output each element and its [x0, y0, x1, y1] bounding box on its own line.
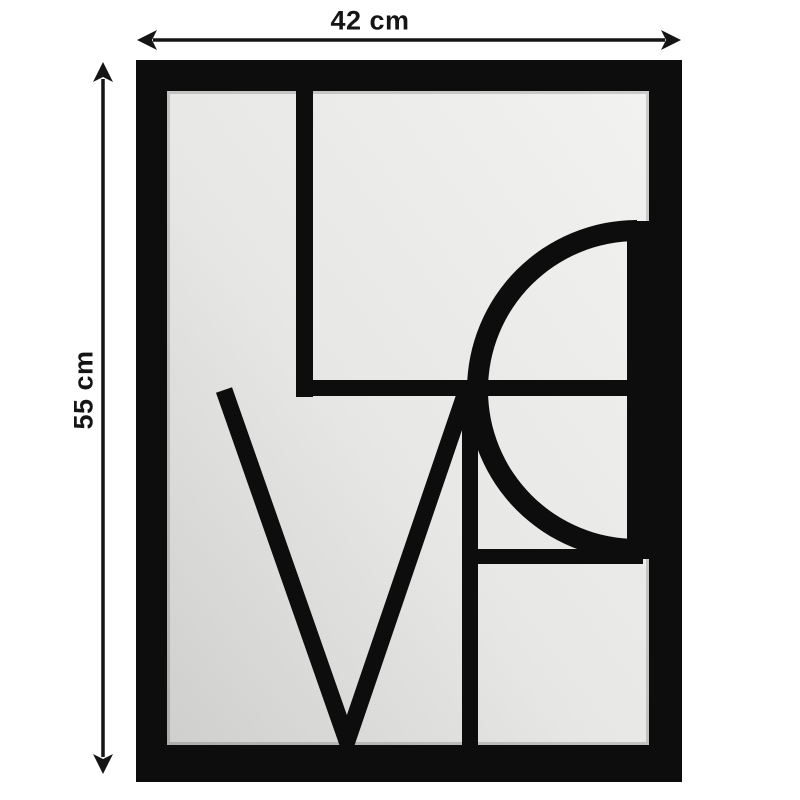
- letter-l-vertical-bar: [296, 91, 313, 397]
- mirror-frame: [136, 60, 682, 782]
- product-dimension-diagram: 42 cm 55 cm: [0, 0, 800, 800]
- love-mirror-illustration: [0, 0, 800, 800]
- letter-o-flat-side: [627, 221, 649, 559]
- height-dimension-label: 55 cm: [69, 350, 100, 429]
- letter-e-vertical-bar: [462, 390, 478, 745]
- letter-e-lower-bar: [462, 549, 643, 564]
- width-dimension-label: 42 cm: [330, 6, 409, 37]
